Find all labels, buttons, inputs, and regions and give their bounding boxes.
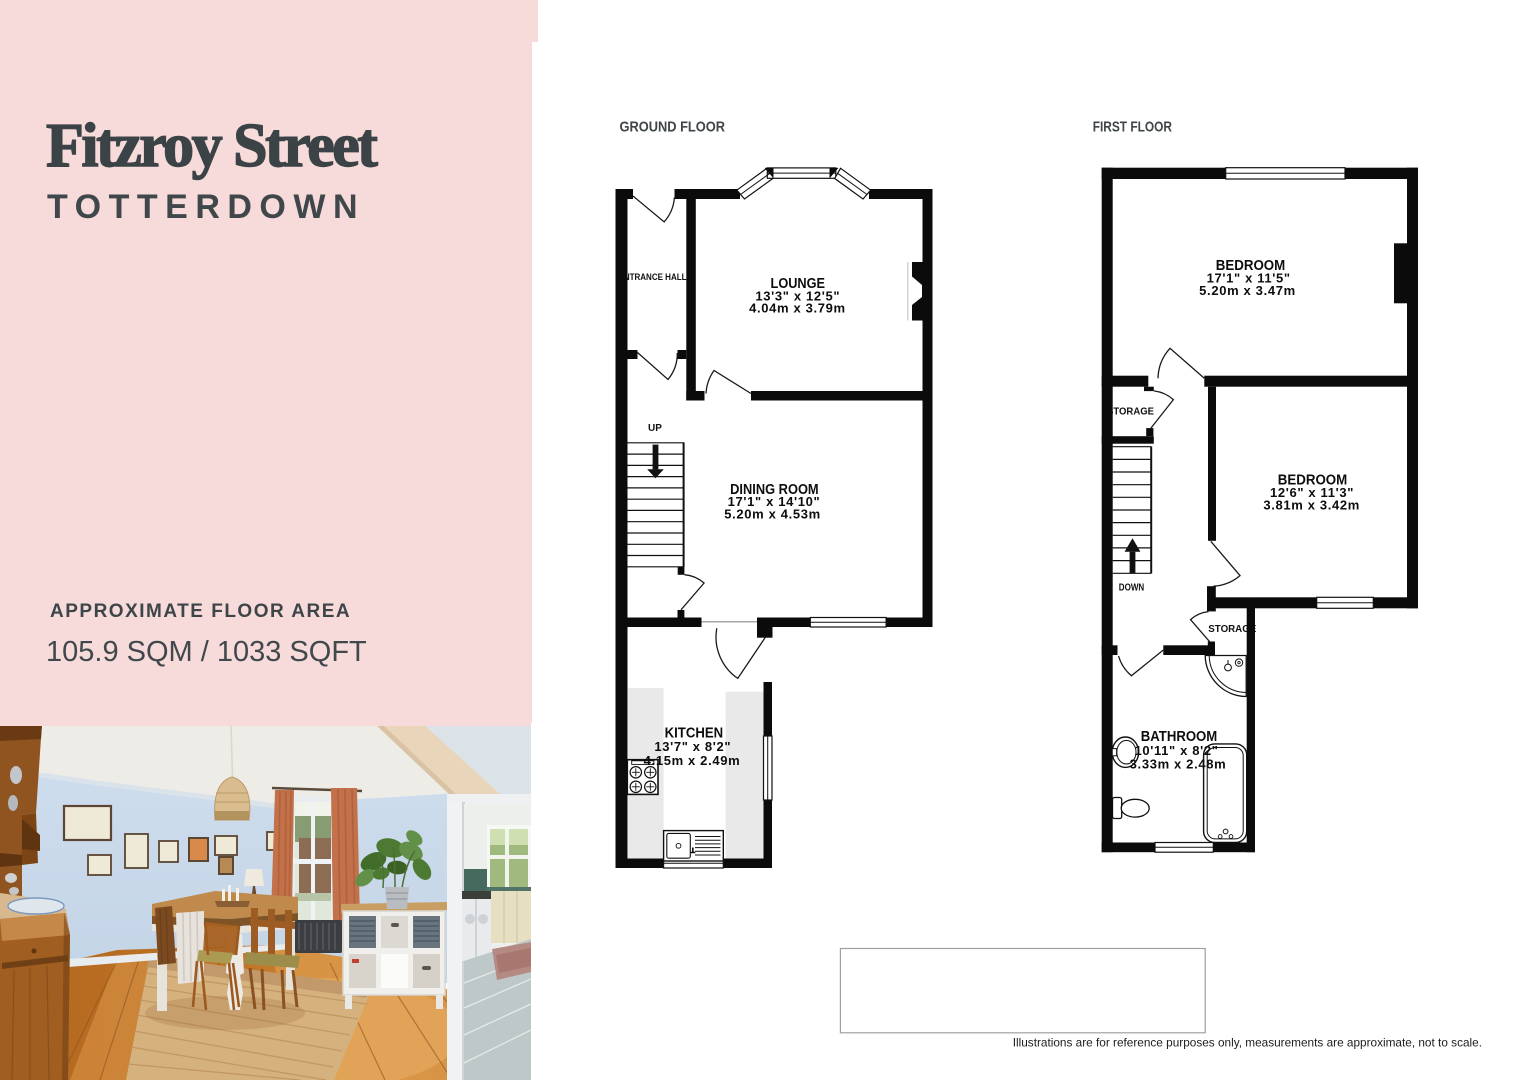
svg-text:Illustrations are for referenc: Illustrations are for reference purposes…: [1013, 1036, 1482, 1050]
svg-text:GROUND FLOOR: GROUND FLOOR: [620, 119, 726, 136]
svg-text:4.04m x 3.79m: 4.04m x 3.79m: [749, 301, 846, 316]
svg-text:3.33m x 2.48m: 3.33m x 2.48m: [1130, 756, 1227, 771]
svg-text:13'7" x 8'2": 13'7" x 8'2": [654, 739, 731, 754]
svg-text:DOWN: DOWN: [1119, 583, 1145, 594]
svg-text:UP: UP: [648, 423, 662, 434]
svg-text:4.15m x 2.49m: 4.15m x 2.49m: [644, 753, 741, 768]
svg-text:5.20m x 4.53m: 5.20m x 4.53m: [724, 507, 821, 522]
svg-text:FIRST FLOOR: FIRST FLOOR: [1093, 119, 1172, 136]
svg-text:STORAGE: STORAGE: [1107, 407, 1154, 418]
svg-text:ENTRANCE HALL: ENTRANCE HALL: [619, 272, 687, 283]
svg-text:5.20m x 3.47m: 5.20m x 3.47m: [1199, 283, 1296, 298]
svg-text:3.81m x 3.42m: 3.81m x 3.42m: [1263, 498, 1360, 513]
